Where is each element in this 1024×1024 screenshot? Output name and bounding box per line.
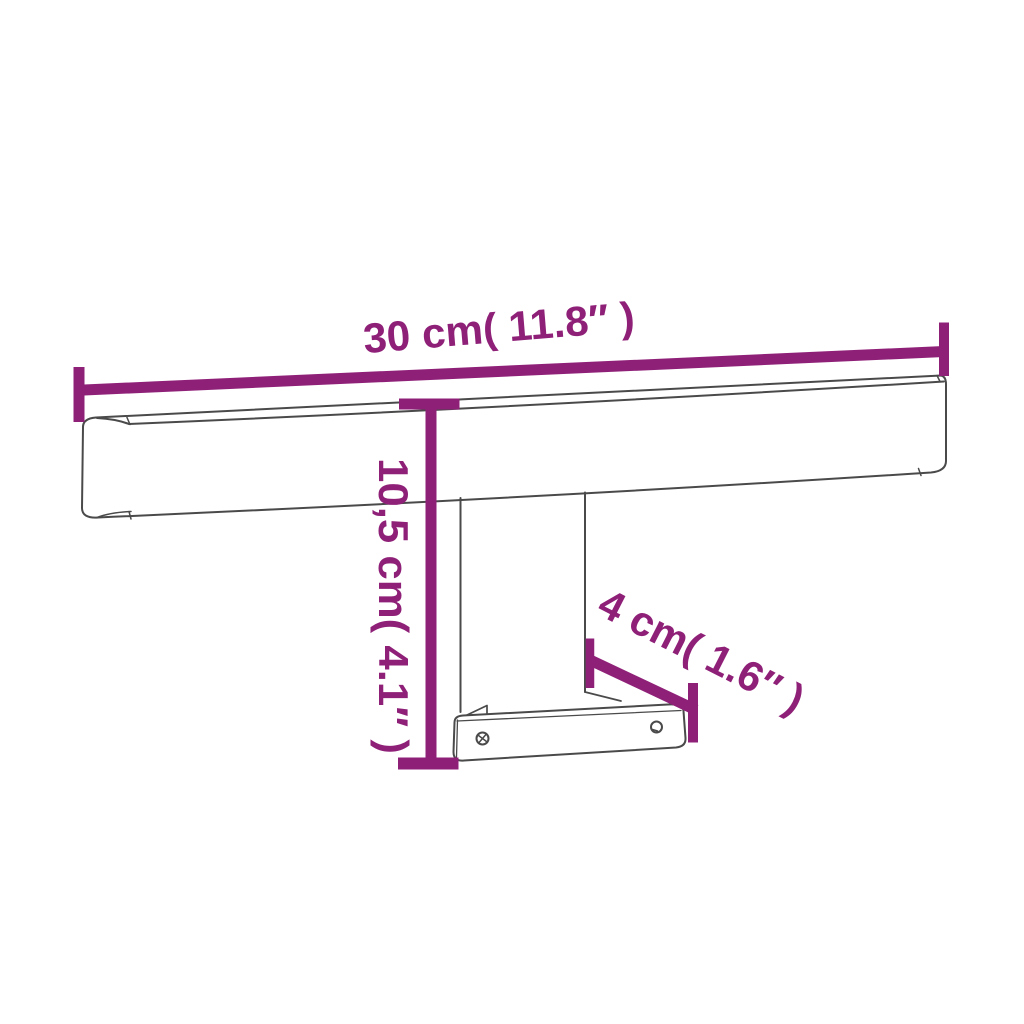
- dimension-diagram-svg: 30 cm( 11.8″ ) 10,5 cm( 4.1″ ) 4 cm( 1.6…: [0, 0, 1024, 1024]
- lamp-illustration: [82, 376, 946, 761]
- depth-dimension-label: 4 cm( 1.6″ ): [591, 579, 812, 723]
- product-dimension-diagram: 30 cm( 11.8″ ) 10,5 cm( 4.1″ ) 4 cm( 1.6…: [0, 0, 1024, 1024]
- width-dimension-label: 30 cm( 11.8″ ): [361, 293, 636, 362]
- mounting-bracket: [454, 704, 686, 760]
- support-arm-fold: [585, 692, 621, 701]
- depth-dimension-line: [590, 660, 696, 710]
- height-dimension-label: 10,5 cm( 4.1″ ): [370, 458, 417, 754]
- light-bar-body: [82, 376, 946, 518]
